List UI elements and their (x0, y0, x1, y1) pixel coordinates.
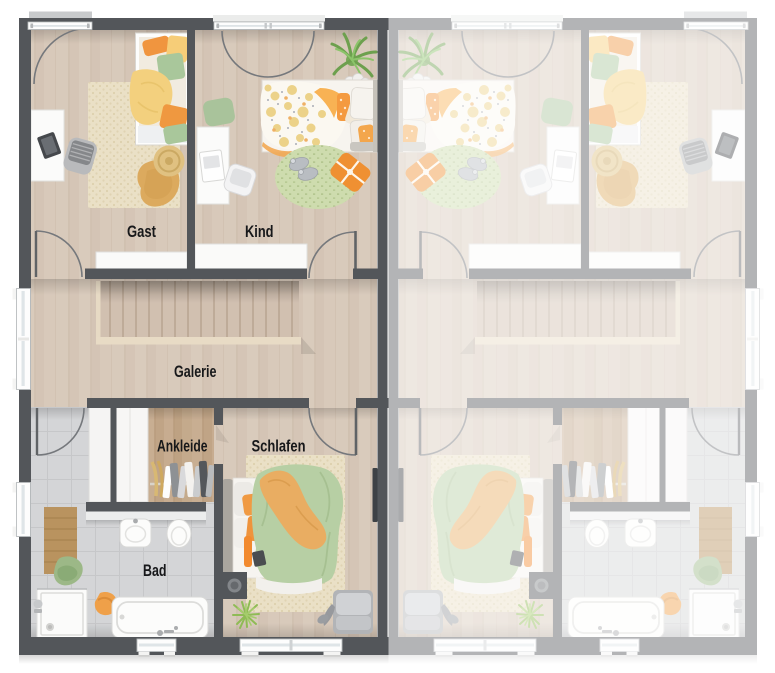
svg-text:Galerie: Galerie (174, 363, 217, 381)
svg-text:Gast: Gast (127, 223, 156, 241)
svg-text:Schlafen: Schlafen (252, 438, 306, 456)
svg-text:Ankleide: Ankleide (157, 438, 208, 456)
svg-text:Bad: Bad (143, 562, 167, 580)
svg-text:Kind: Kind (245, 223, 274, 241)
